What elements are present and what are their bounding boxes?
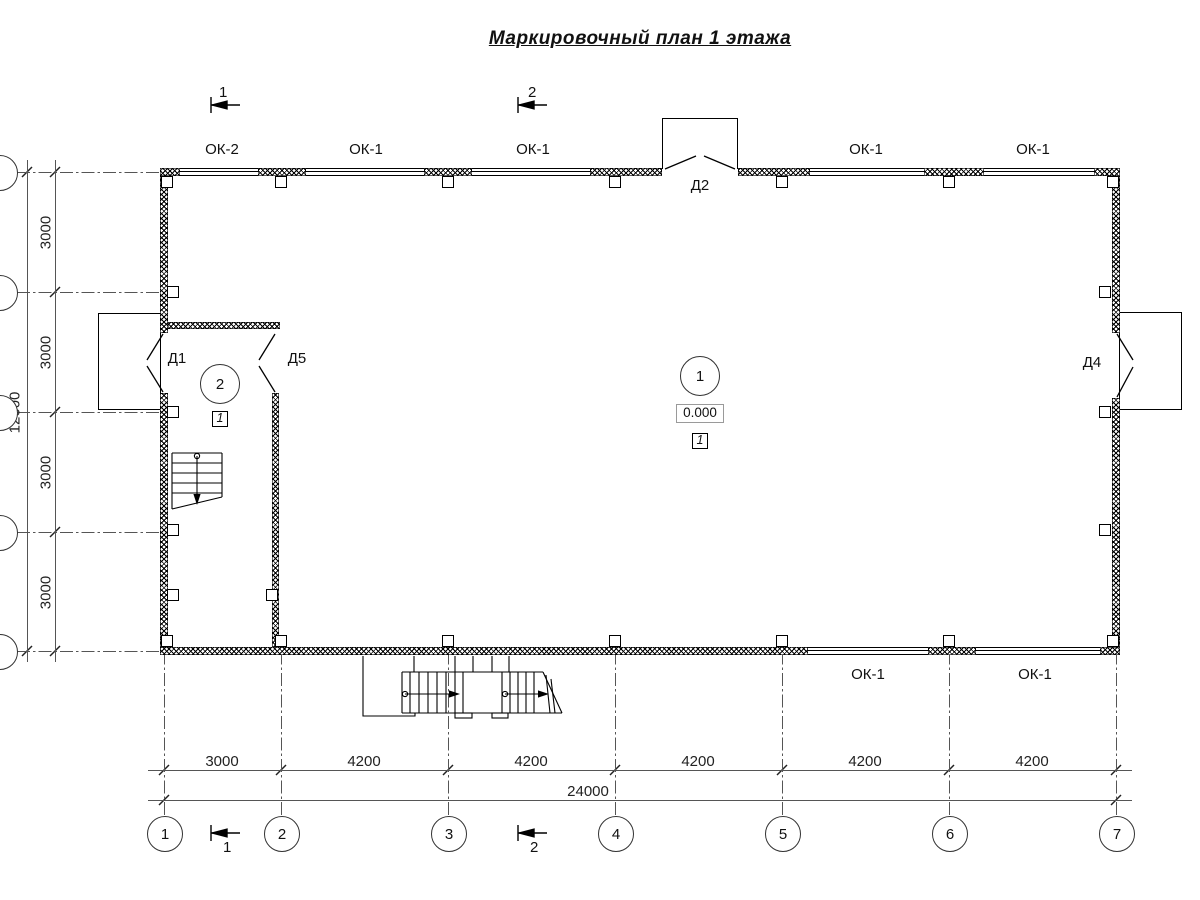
floor-type-marker: 1	[692, 433, 708, 449]
row-axis-line	[17, 172, 160, 173]
column-marker	[1099, 286, 1111, 298]
section-number-top-1: 1	[219, 84, 227, 101]
row-axis-line	[17, 292, 160, 293]
wall-segment	[1112, 176, 1120, 333]
room-number-bubble: 2	[200, 364, 240, 404]
section-number-bottom-1: 1	[223, 839, 231, 856]
dim-label: 3000	[38, 451, 55, 495]
room-number: 1	[696, 368, 704, 385]
partition-wall	[272, 393, 279, 647]
grid-axis-bubble: 4	[598, 816, 634, 852]
window-label: ОК-1	[501, 141, 565, 158]
room-number-bubble: 1	[680, 356, 720, 396]
wall-segment	[1112, 398, 1120, 647]
window-label: ОК-2	[190, 141, 254, 158]
dim-label: 4200	[501, 753, 561, 770]
grid-axis-number: 7	[1113, 826, 1121, 843]
grid-axis-number: 3	[445, 826, 453, 843]
column-marker	[167, 286, 179, 298]
row-axis-line	[17, 532, 160, 533]
door-leaves-d2	[665, 156, 735, 169]
column-axis-line	[1116, 655, 1117, 815]
grid-axis-number: 2	[278, 826, 286, 843]
column-marker	[609, 176, 621, 188]
room-number: 2	[216, 376, 224, 393]
window-label: ОК-1	[836, 666, 900, 683]
column-marker	[167, 524, 179, 536]
wall-segment	[590, 168, 662, 176]
column-marker	[943, 176, 955, 188]
wall-segment	[258, 168, 306, 176]
column-marker	[167, 589, 179, 601]
column-marker	[1107, 176, 1119, 188]
dimension-line-total	[148, 800, 1132, 801]
column-marker	[1099, 524, 1111, 536]
window-label: ОК-1	[334, 141, 398, 158]
grid-axis-bubble: 6	[932, 816, 968, 852]
window-ok1	[984, 168, 1094, 176]
window-label: ОК-1	[1003, 666, 1067, 683]
grid-axis-bubble: 2	[264, 816, 300, 852]
dim-label: 3000	[38, 331, 55, 375]
column-marker	[167, 406, 179, 418]
grid-axis-number: 1	[161, 826, 169, 843]
dim-label: 4200	[334, 753, 394, 770]
exterior-stair	[363, 656, 562, 718]
column-marker	[776, 176, 788, 188]
wall-segment	[160, 176, 168, 333]
column-axis-line	[949, 655, 950, 815]
grid-axis-number: 5	[779, 826, 787, 843]
column-marker	[1099, 406, 1111, 418]
window-ok1	[472, 168, 590, 176]
level-mark: 0.000	[676, 404, 724, 423]
dimension-line-segments	[148, 770, 1132, 771]
grid-axis-bubble: 1	[147, 816, 183, 852]
column-marker	[442, 176, 454, 188]
grid-axis-bubble: 5	[765, 816, 801, 852]
column-marker	[442, 635, 454, 647]
dim-label: 4200	[1002, 753, 1062, 770]
door-label-d2: Д2	[670, 177, 730, 194]
wall-segment	[928, 647, 976, 655]
door-label-d4: Д4	[1062, 354, 1122, 371]
column-marker	[161, 176, 173, 188]
window-ok1	[810, 168, 924, 176]
door-label-d5: Д5	[267, 350, 327, 367]
dim-label: 3000	[38, 211, 55, 255]
column-axis-line	[448, 655, 449, 815]
column-marker	[275, 176, 287, 188]
wall-segment	[738, 168, 810, 176]
window-ok1	[306, 168, 424, 176]
dimension-ticks	[22, 167, 1121, 805]
dim-label: 4200	[668, 753, 728, 770]
wall-segment	[160, 647, 808, 655]
floor-plan-drawing: { "title": "Маркировочный план 1 этажа",…	[0, 0, 1200, 900]
grid-axis-number: 4	[612, 826, 620, 843]
column-axis-line	[281, 655, 282, 815]
column-marker	[609, 635, 621, 647]
dim-label-total: 24000	[553, 783, 623, 800]
column-marker	[1107, 635, 1119, 647]
partition-wall	[168, 322, 280, 329]
window-label: ОК-1	[834, 141, 898, 158]
grid-axis-bubble: 3	[431, 816, 467, 852]
section-number-top-2: 2	[528, 84, 536, 101]
interior-stair	[172, 453, 222, 509]
window-ok1	[808, 647, 928, 655]
wall-segment	[1100, 647, 1120, 655]
grid-axis-number: 6	[946, 826, 954, 843]
window-ok1	[976, 647, 1100, 655]
row-axis-line	[17, 412, 160, 413]
dim-label: 3000	[38, 571, 55, 615]
row-axis-line	[17, 651, 160, 652]
window-label: ОК-1	[1001, 141, 1065, 158]
dim-label: 4200	[835, 753, 895, 770]
column-marker	[266, 589, 278, 601]
grid-axis-bubble: 7	[1099, 816, 1135, 852]
door-label-d1: Д1	[147, 350, 207, 367]
wall-segment	[424, 168, 472, 176]
dim-label: 3000	[192, 753, 252, 770]
column-axis-line	[782, 655, 783, 815]
column-marker	[776, 635, 788, 647]
floor-type-marker: 1	[212, 411, 228, 427]
column-axis-line	[164, 655, 165, 815]
section-number-bottom-2: 2	[530, 839, 538, 856]
column-marker	[943, 635, 955, 647]
wall-segment	[160, 393, 168, 647]
column-marker	[275, 635, 287, 647]
dimension-line-left-total	[27, 160, 28, 662]
column-marker	[161, 635, 173, 647]
window-ok2	[180, 168, 258, 176]
wall-segment	[1094, 168, 1120, 176]
dimension-line-left-segments	[55, 160, 56, 662]
wall-segment	[924, 168, 984, 176]
wall-segment	[160, 168, 180, 176]
